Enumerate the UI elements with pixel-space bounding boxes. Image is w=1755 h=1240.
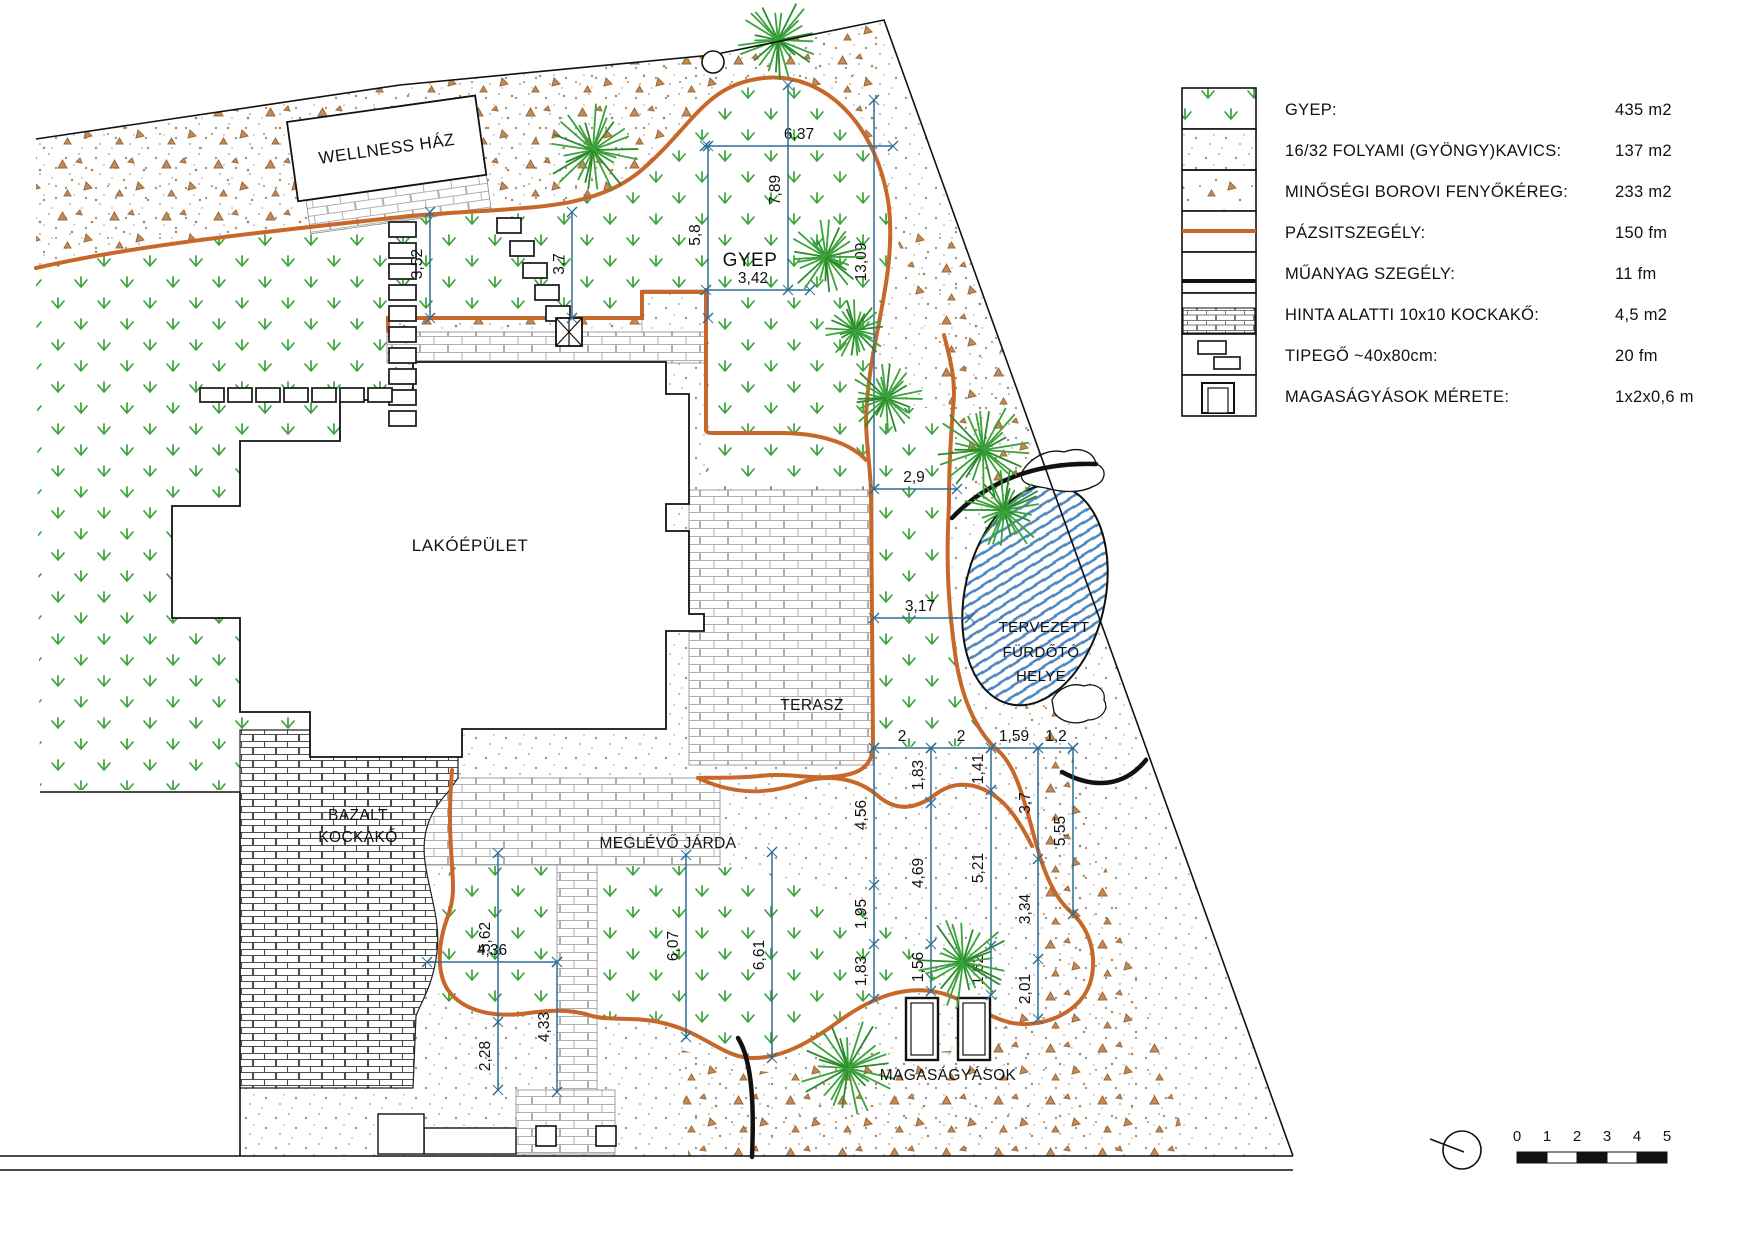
stepping-stone — [228, 388, 252, 402]
svg-text:5,8: 5,8 — [687, 224, 704, 246]
legend-label: HINTA ALATTI 10x10 KOCKAKŐ: — [1285, 305, 1539, 324]
stepping-stone — [389, 411, 416, 426]
walkway-top-strip — [387, 332, 705, 363]
gate-post — [536, 1126, 556, 1146]
legend-value: 435 m2 — [1615, 101, 1672, 119]
stepping-stone — [389, 369, 416, 384]
legend-label: TIPEGŐ ~40x80cm: — [1285, 346, 1438, 365]
legend-label: PÁZSITSZEGÉLY: — [1285, 223, 1426, 242]
legend-value: 11 fm — [1615, 265, 1657, 283]
stepping-stone — [523, 263, 547, 278]
existing-walkway-label: MEGLÉVŐ JÁRDA — [600, 835, 737, 852]
scale-tick: 1 — [1543, 1128, 1551, 1145]
legend-label: 16/32 FOLYAMI (GYÖNGY)KAVICS: — [1285, 142, 1561, 160]
svg-text:1,83: 1,83 — [853, 956, 870, 986]
svg-text:1,95: 1,95 — [853, 899, 870, 929]
raised-beds-label: MAGASÁGYÁSOK — [880, 1067, 1017, 1084]
legend-raised-bed-symbol — [1202, 383, 1234, 413]
svg-text:6,07: 6,07 — [665, 931, 682, 961]
stepping-stone — [200, 388, 224, 402]
north-indicator-icon — [1430, 1131, 1481, 1169]
legend-cobble-bricks — [1183, 308, 1255, 333]
garden-plan-canvas: WELLNESS HÁZ 6,375,87,8913,093,422,93,17… — [0, 0, 1755, 1240]
legend-value: 233 m2 — [1615, 183, 1672, 201]
legend-value: 1x2x0,6 m — [1615, 388, 1694, 406]
legend-label: MINŐSÉGI BOROVI FENYŐKÉREG: — [1285, 182, 1568, 201]
stepping-stone — [256, 388, 280, 402]
svg-text:2: 2 — [898, 728, 907, 745]
stepping-stone — [389, 390, 416, 405]
scale-tick: 4 — [1633, 1128, 1641, 1145]
basalt-label-line2: KOCKAKŐ — [318, 829, 397, 846]
basalt-label-line1: BAZALT — [328, 807, 388, 824]
svg-text:1,56: 1,56 — [910, 952, 927, 982]
svg-text:2: 2 — [957, 728, 966, 745]
terrace-paving — [689, 490, 873, 765]
legend-label: MAGASÁGYÁSOK MÉRETE: — [1285, 387, 1509, 406]
scale-tick: 5 — [1663, 1128, 1671, 1145]
terrace-label: TERASZ — [780, 697, 844, 714]
legend-swatch-grass — [1182, 88, 1256, 129]
stepping-stone — [497, 218, 521, 233]
stepping-stone — [340, 388, 364, 402]
svg-text:7,89: 7,89 — [767, 175, 784, 205]
svg-text:4,33: 4,33 — [536, 1012, 553, 1042]
svg-text:1,41: 1,41 — [970, 754, 987, 784]
stepping-stone — [389, 306, 416, 321]
stepping-stone — [284, 388, 308, 402]
survey-point-circle — [702, 51, 724, 73]
pond-rocks-bottom — [1052, 685, 1106, 723]
stepping-stone — [535, 285, 559, 300]
legend-value: 150 fm — [1615, 224, 1667, 242]
svg-text:3,42: 3,42 — [738, 270, 768, 287]
scale-bar: 0 1 2 3 4 5 — [1513, 1128, 1671, 1163]
legend-value: 4,5 m2 — [1615, 306, 1667, 324]
svg-text:6,61: 6,61 — [751, 940, 768, 970]
legend-value: 137 m2 — [1615, 142, 1672, 160]
legend-label: MŰANYAG SZEGÉLY: — [1285, 264, 1455, 283]
svg-text:5,21: 5,21 — [970, 853, 987, 883]
stepping-stone — [389, 348, 416, 363]
scale-tick: 2 — [1573, 1128, 1581, 1145]
svg-text:1,2: 1,2 — [1045, 728, 1067, 745]
scale-tick: 0 — [1513, 1128, 1521, 1145]
legend-value: 20 fm — [1615, 347, 1658, 365]
svg-text:3,17: 3,17 — [905, 598, 935, 615]
legend-swatch-bark — [1182, 170, 1256, 211]
legend-texts: GYEP: 435 m2 16/32 FOLYAMI (GYÖNGY)KAVIC… — [1285, 101, 1694, 406]
svg-text:5,55: 5,55 — [1052, 816, 1069, 846]
stepping-stone — [389, 327, 416, 342]
main-house-label: LAKÓÉPÜLET — [412, 536, 529, 555]
gate-pillar — [378, 1114, 424, 1154]
legend-label: GYEP: — [1285, 101, 1337, 119]
pond-label-line2: FÜRDŐTÓ — [1003, 643, 1080, 661]
site-plan-drawing: WELLNESS HÁZ 6,375,87,8913,093,422,93,17… — [0, 0, 1755, 1240]
legend-swatch-plastic-edge — [1182, 252, 1256, 293]
svg-text:4,36: 4,36 — [477, 942, 507, 959]
svg-text:2,9: 2,9 — [903, 469, 925, 486]
svg-text:1,83: 1,83 — [910, 760, 927, 790]
walkway-vertical — [557, 865, 597, 1091]
stepping-stone — [510, 241, 534, 256]
swing-cobble-pad — [556, 318, 582, 346]
bark-strip — [388, 318, 642, 332]
svg-text:1,59: 1,59 — [999, 728, 1029, 745]
svg-text:3,52: 3,52 — [409, 249, 426, 279]
legend-swatch-pebble — [1182, 129, 1256, 170]
svg-text:4,56: 4,56 — [853, 800, 870, 830]
legend: GYEP: 435 m2 16/32 FOLYAMI (GYÖNGY)KAVIC… — [1182, 88, 1694, 416]
scale-tick: 3 — [1603, 1128, 1611, 1145]
svg-text:2,01: 2,01 — [1017, 974, 1034, 1004]
pond-label-line3: HELYE — [1016, 668, 1066, 685]
stepping-stone — [389, 285, 416, 300]
svg-text:3,7: 3,7 — [1017, 792, 1034, 814]
gate-post — [596, 1126, 616, 1146]
svg-text:3,34: 3,34 — [1017, 894, 1034, 925]
stepping-stone — [389, 222, 416, 237]
svg-text:3,7: 3,7 — [551, 253, 568, 275]
driveway-slab — [424, 1128, 516, 1154]
svg-text:2,28: 2,28 — [477, 1041, 494, 1071]
pond-label-line1: TERVEZETT — [999, 619, 1090, 636]
stepping-stone — [312, 388, 336, 402]
stepping-stone — [368, 388, 392, 402]
svg-text:4,69: 4,69 — [910, 858, 927, 888]
lawn-label: GYEP — [723, 250, 778, 271]
